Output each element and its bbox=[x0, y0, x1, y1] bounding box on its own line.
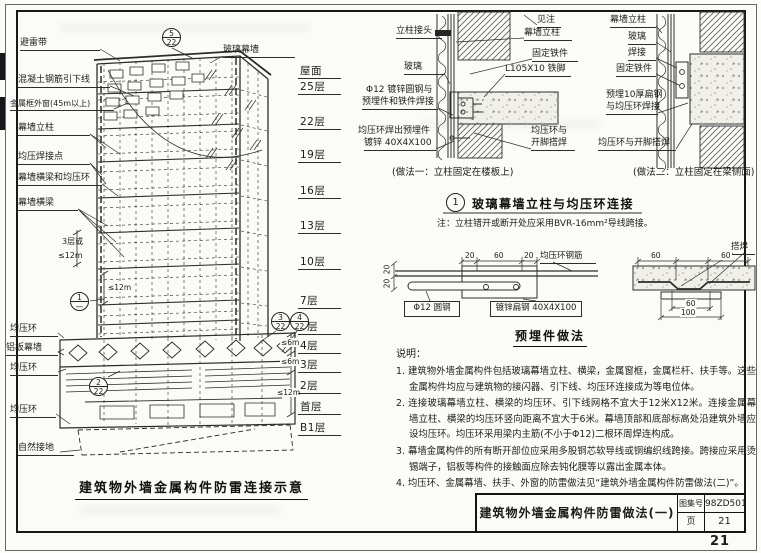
embed-label-lap-weld: 搭焊 bbox=[731, 242, 755, 255]
label-glass-wall: 玻璃幕墙 bbox=[223, 45, 295, 58]
page-number: 21 bbox=[710, 534, 730, 549]
embed-label-rebar: 均压环钢筋 bbox=[540, 251, 596, 264]
note-item-1: 1. 建筑物外墙金属构件包括玻璃幕墙立柱、横梁，金属窗框，金属栏杆、扶手等。这些… bbox=[396, 364, 756, 395]
detail-one-caption: (做法一：立柱固定在楼板上) bbox=[392, 164, 513, 178]
detail-bubble-5-22: 522 bbox=[162, 28, 181, 47]
detail-bubble-3-22: 322 bbox=[271, 312, 290, 331]
title-block: 建筑物外墙金属构件防雷做法(一) 图集号 98ZD501 页 21 bbox=[475, 493, 746, 533]
embed-dim-60: 60 bbox=[493, 251, 505, 260]
floor-label-4: 4层 bbox=[298, 340, 341, 354]
embed-label-plate: 镀锌扁钢 40X4X100 bbox=[490, 301, 582, 317]
bubble-sheet: 22 bbox=[291, 322, 308, 330]
label-ring-3: 均压环 bbox=[10, 405, 56, 418]
d2-label-ring: 均压环与开脚搭焊 bbox=[598, 138, 676, 151]
bubble-sheet: — bbox=[71, 302, 88, 310]
d1-label-mullion: 幕墙立柱 bbox=[524, 28, 572, 41]
d2-label-embed-line1: 预埋10厚扁钢 bbox=[606, 90, 662, 101]
label-weld-point: 均压焊接点 bbox=[18, 152, 90, 165]
note-item-3: 3. 幕墙金属构件的所有断开部位应采用多股铜芯软导线或铜编织线跨接。跨接应采用烫… bbox=[396, 444, 756, 475]
embed-dim-60c: 60 bbox=[685, 299, 697, 308]
note-item-2: 2. 连接玻璃幕墙立柱、横梁的均压环、引下线网格不宜大于12米X12米。连接金属… bbox=[396, 396, 756, 443]
label-text: 幕墙横梁 bbox=[18, 198, 54, 208]
atlas-number-value: 98ZD501 bbox=[704, 495, 744, 513]
embed-dim-60b: 60 bbox=[720, 251, 732, 260]
label-text: 混凝土钢筋引下线 bbox=[18, 75, 90, 85]
connection-note: 注：立柱错开或断开处应采用BVR-16mm²导线跨接。 bbox=[437, 219, 653, 230]
bubble-number: 2 bbox=[90, 378, 107, 387]
floor-label-13: 13层 bbox=[298, 220, 341, 234]
connection-title: 玻璃幕墙立柱与均压环连接 bbox=[472, 195, 634, 212]
label-down-conductor: 混凝土钢筋引下线 bbox=[18, 75, 110, 88]
embed-label-rod: Φ12 圆钢 bbox=[404, 301, 460, 317]
notes-block: 说明： 1. 建筑物外墙金属构件包括玻璃幕墙立柱、横梁，金属窗框，金属栏杆、扶手… bbox=[396, 345, 756, 493]
floor-label-3: 3层 bbox=[298, 359, 341, 373]
d1-label-glass: 玻璃 bbox=[404, 62, 444, 75]
d1-label-joint: 立柱接头 bbox=[396, 26, 442, 39]
embed-dim-20b: 20 bbox=[523, 251, 535, 260]
label-text: 幕墙横梁和均压环 bbox=[18, 173, 90, 183]
d1-label-angle: L105X10 铁脚 bbox=[505, 64, 571, 77]
label-text: 铝板幕墙 bbox=[6, 343, 42, 353]
label-ring-2: 均压环 bbox=[10, 363, 58, 376]
embed-dim-100: 100 bbox=[680, 308, 696, 317]
dim-12m-a: ≤12m bbox=[58, 250, 83, 261]
page-value: 21 bbox=[704, 513, 744, 531]
floor-label-b1: B1层 bbox=[298, 422, 341, 436]
label-text: 均压环 bbox=[10, 324, 37, 334]
bubble-number: 4 bbox=[291, 313, 308, 322]
notes-heading: 说明： bbox=[396, 345, 756, 360]
label-metal-window: 金属框外窗(45m以上) bbox=[10, 98, 114, 111]
d2-label-fix: 固定铁件 bbox=[616, 64, 656, 77]
d1-label-fix: 固定铁件 bbox=[532, 49, 578, 62]
label-text: 均压环 bbox=[10, 405, 37, 415]
label-text: 避雷带 bbox=[20, 38, 47, 48]
elevation-caption: 建筑物外墙金属构件防雷连接示意 bbox=[75, 477, 308, 500]
label-mullion: 幕墙立柱 bbox=[18, 123, 90, 136]
bubble-sheet: 22 bbox=[272, 322, 289, 330]
d2-label-glass: 玻璃 bbox=[628, 32, 656, 45]
label-natural-ground: 自然接地 bbox=[18, 443, 74, 456]
d1-label-rod-line2: 预埋件和铁件焊接 bbox=[362, 97, 438, 110]
label-beam-ring: 幕墙横梁和均压环 bbox=[18, 173, 102, 186]
d1-label-see-note: 见注 bbox=[537, 15, 561, 28]
detail-bubble-1: 1— bbox=[70, 292, 89, 311]
embed-vdim-20b: 20 bbox=[382, 279, 391, 289]
floor-label-roof: 屋面 bbox=[298, 65, 341, 79]
label-text: 金属框外窗(45m以上) bbox=[10, 99, 90, 108]
dim-three-floors: 3层或 bbox=[62, 236, 83, 247]
standard-drawing-sheet: 避雷带 混凝土钢筋引下线 金属框外窗(45m以上) 幕墙立柱 均压焊接点 幕墙横… bbox=[0, 0, 761, 553]
detail-bubble-4-22: 422 bbox=[290, 312, 309, 331]
label-text: 玻璃幕墙 bbox=[223, 45, 259, 55]
floor-label-22: 22层 bbox=[298, 116, 341, 130]
floor-label-16: 16层 bbox=[298, 185, 341, 199]
label-beam: 幕墙横梁 bbox=[18, 198, 78, 211]
page-label: 页 bbox=[677, 513, 704, 531]
embed-caption: 预埋件做法 bbox=[513, 327, 587, 347]
embed-dim-60a: 60 bbox=[650, 251, 662, 260]
bubble-sheet: 22 bbox=[90, 387, 107, 395]
note-item-4: 4. 均压环、金属幕墙、扶手、外窗的防雷做法见“建筑外墙金属构件防雷做法(二)”… bbox=[396, 476, 756, 492]
d2-label-embed-line2: 与均压环焊接 bbox=[606, 102, 658, 115]
d1-label-embed-line2: 镀锌 40X4X100 bbox=[364, 138, 436, 151]
d1-label-ring-line2: 开脚搭焊 bbox=[531, 138, 575, 151]
d1-label-embed-line1: 均压环焊出预埋件 bbox=[358, 126, 430, 137]
bubble-sheet: 22 bbox=[163, 38, 180, 46]
label-text: 均压焊接点 bbox=[18, 152, 63, 162]
atlas-number-label: 图集号 bbox=[677, 495, 704, 513]
label-lightning-belt: 避雷带 bbox=[20, 38, 100, 51]
label-text: 自然接地 bbox=[18, 443, 54, 453]
sheet-title: 建筑物外墙金属构件防雷做法(一) bbox=[477, 495, 677, 531]
connection-number-bubble: 1 bbox=[446, 193, 465, 212]
embed-dim-20a: 20 bbox=[464, 251, 476, 260]
bubble-number: 1 bbox=[71, 293, 88, 302]
floor-label-2: 2层 bbox=[298, 380, 341, 394]
floor-label-25: 25层 bbox=[298, 81, 341, 95]
d1-label-ring-line1: 均压环与 bbox=[531, 126, 567, 137]
dim-12m-b: ≤12m bbox=[107, 283, 132, 292]
detail-two-caption: (做法二：立柱固定在梁侧面) bbox=[633, 164, 754, 178]
d1-label-rod-line1: Φ12 镀锌圆钢与 bbox=[366, 85, 432, 96]
floor-label-7: 7层 bbox=[298, 295, 341, 309]
d2-label-mullion: 幕墙立柱 bbox=[610, 15, 656, 28]
label-text: 均压环 bbox=[10, 363, 37, 373]
d2-label-weld: 焊接 bbox=[628, 48, 656, 61]
bubble-number: 3 bbox=[272, 313, 289, 322]
label-alu-panel: 铝板幕墙 bbox=[6, 343, 58, 356]
floor-label-first: 首层 bbox=[298, 401, 341, 415]
bubble-number: 5 bbox=[163, 29, 180, 38]
label-ring-1: 均压环 bbox=[10, 324, 58, 337]
label-text: 幕墙立柱 bbox=[18, 123, 54, 133]
embed-vdim-20a: 20 bbox=[382, 265, 391, 275]
floor-label-10: 10层 bbox=[298, 256, 341, 270]
floor-label-19: 19层 bbox=[298, 149, 341, 163]
detail-bubble-2-22: 222 bbox=[89, 377, 108, 396]
